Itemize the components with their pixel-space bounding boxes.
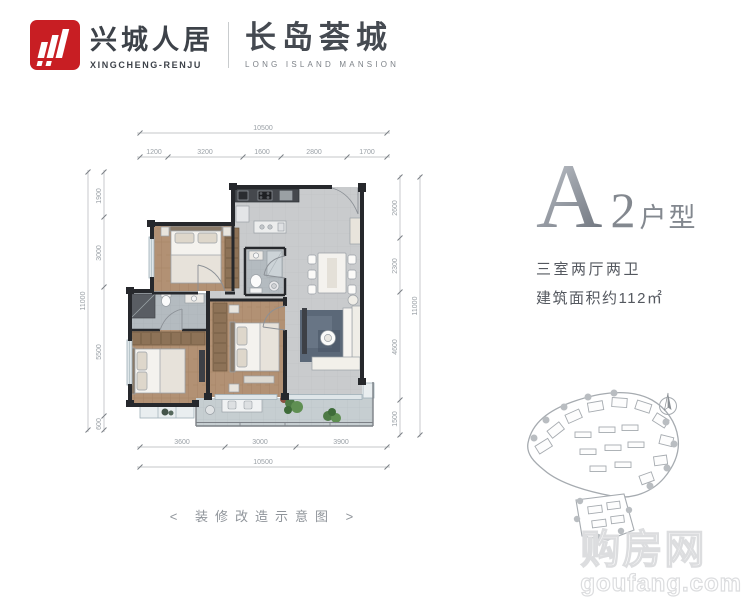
- renovation-caption: < 装修改造示意图 >: [120, 506, 410, 525]
- svg-text:1600: 1600: [254, 149, 270, 156]
- svg-text:1700: 1700: [359, 149, 375, 156]
- site-plan: [528, 390, 679, 541]
- room-bedroom2-furniture: [161, 226, 239, 288]
- dining-furniture: [308, 253, 356, 294]
- svg-text:1900: 1900: [96, 188, 103, 204]
- svg-text:2600: 2600: [392, 200, 399, 216]
- dim-right-overall: 11000: [412, 296, 419, 315]
- svg-text:1500: 1500: [392, 411, 399, 427]
- svg-text:4600: 4600: [392, 339, 399, 355]
- watermark: 购房网 goufang.com: [580, 530, 742, 596]
- page: 兴城人居 XINGCHENG-RENJU 长岛荟城 LONG ISLAND MA…: [0, 0, 750, 600]
- dim-top-overall: 10500: [253, 125, 273, 132]
- svg-text:5500: 5500: [96, 344, 103, 360]
- svg-text:2300: 2300: [392, 258, 399, 274]
- dim-left-overall: 11000: [80, 291, 87, 310]
- tv-console: [302, 308, 307, 354]
- svg-text:3200: 3200: [197, 149, 213, 156]
- svg-text:2800: 2800: [306, 149, 322, 156]
- watermark-zh: 购房网: [580, 530, 742, 570]
- watermark-en: goufang.com: [580, 572, 742, 596]
- svg-text:3000: 3000: [252, 439, 268, 446]
- svg-text:600: 600: [96, 418, 103, 430]
- dim-bottom-overall: 10500: [253, 459, 273, 466]
- svg-text:3900: 3900: [333, 439, 349, 446]
- svg-text:3600: 3600: [174, 439, 190, 446]
- svg-text:1200: 1200: [146, 149, 162, 156]
- svg-text:3000: 3000: [96, 245, 103, 261]
